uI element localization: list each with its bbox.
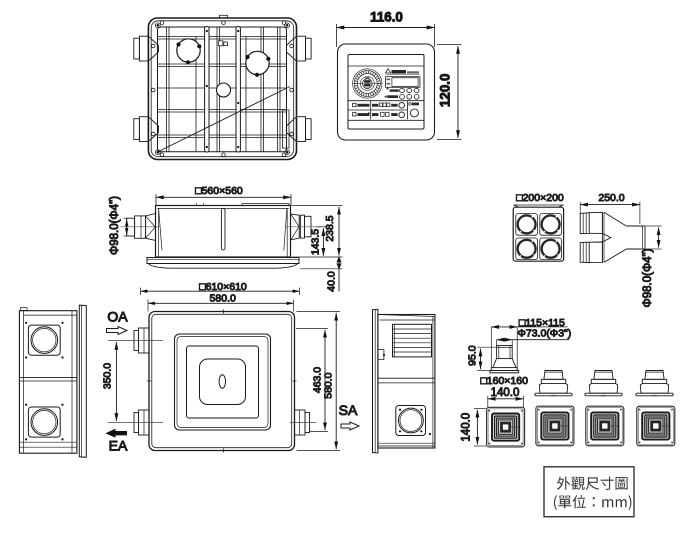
svg-text:□560×560: □560×560 (195, 185, 243, 197)
svg-text:580.0: 580.0 (322, 372, 334, 398)
svg-text:OA: OA (107, 309, 128, 325)
svg-text:□200×200: □200×200 (516, 192, 564, 204)
svg-text:SA: SA (339, 402, 358, 418)
svg-text:Φ98.0(Φ4"): Φ98.0(Φ4") (642, 248, 654, 307)
svg-text:□160×160: □160×160 (480, 375, 528, 387)
svg-text:580.0: 580.0 (210, 293, 236, 305)
svg-text:95.0: 95.0 (466, 345, 478, 366)
svg-text:40.0: 40.0 (326, 271, 338, 292)
svg-text:250.0: 250.0 (598, 192, 624, 204)
svg-text:140.0: 140.0 (491, 387, 520, 399)
svg-text:EA: EA (109, 437, 128, 453)
svg-text:350.0: 350.0 (102, 363, 114, 389)
svg-text:Φ73.0(Φ3"): Φ73.0(Φ3") (518, 327, 572, 339)
svg-text:238.5: 238.5 (324, 215, 336, 241)
svg-text:116.0: 116.0 (370, 9, 403, 24)
svg-text:Φ98.0(Φ4"): Φ98.0(Φ4") (109, 196, 121, 255)
svg-text:143.5: 143.5 (310, 229, 322, 255)
svg-text:120.0: 120.0 (437, 74, 452, 108)
svg-text:140.0: 140.0 (461, 413, 473, 442)
